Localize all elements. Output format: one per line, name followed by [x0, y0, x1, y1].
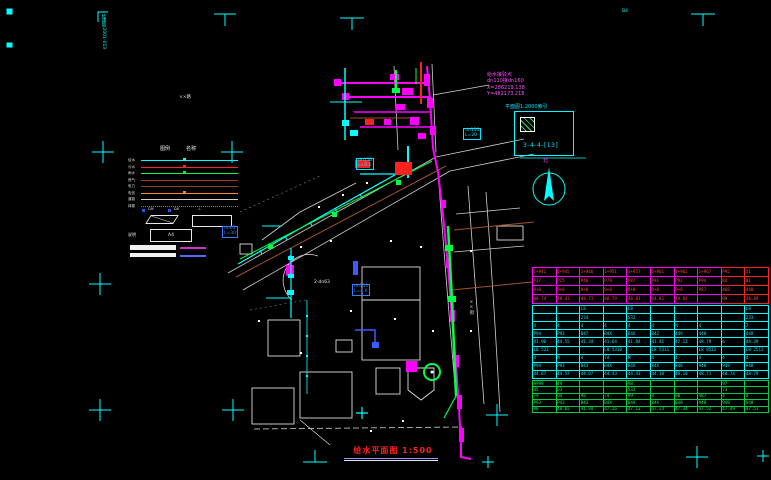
pipe-table-cell: B4X: [603, 330, 627, 338]
pipe-table-lower: 999949989745D353273799498749949048744P93…: [532, 380, 769, 413]
cad-canvas[interactable]: 平面图1:2000索引 3-4-4-[13] 北 给水接驳点 dn110接dn1…: [0, 0, 771, 480]
pipe-table-cell: 47.11: [674, 338, 698, 346]
legend-row-line: [141, 199, 238, 200]
pipe-table-cell: 532: [627, 314, 651, 322]
legend-row-line: [141, 186, 238, 187]
pipe-table-cell: L8 5310: [603, 346, 627, 354]
pipe-table-cell: [721, 306, 745, 314]
pipe-table-cell: 48.65: [556, 406, 580, 412]
legend-row-2: 雨水: [128, 171, 246, 177]
pipe-table-cell: 44.82: [650, 295, 674, 304]
pipe-table-cell: 1+962: [674, 268, 698, 277]
pipe-table-cell: [698, 314, 722, 322]
pipe-table-cell: M: [556, 354, 580, 362]
pipe-table-cell: 41.34: [580, 338, 604, 346]
pipe-table-cell: L8: [745, 306, 769, 314]
pipe-table-cell: 47.49: [721, 406, 745, 412]
pipe-table-cell: [698, 306, 722, 314]
pipe-table-cell: 48.74: [533, 295, 557, 304]
pipe-table-cell: [603, 314, 627, 322]
pipe-table-cell: [698, 295, 722, 304]
pipe-table-cell: 98: [721, 295, 745, 304]
pipe-table-cell: [533, 306, 557, 314]
pipe-table-cell: 4: [698, 322, 722, 330]
pipe-table-cell: m: [721, 338, 745, 346]
pipe-table-cell: [674, 314, 698, 322]
connection-line4: Y=482173.218: [487, 91, 525, 97]
pipe-table-cell: 48.79: [745, 370, 769, 378]
pipe-table-cell: [556, 306, 580, 314]
pipe-table-cell: [674, 306, 698, 314]
pipe-table-cell: 44.67: [533, 370, 557, 378]
pipe-table-cell: L8: [627, 306, 651, 314]
map-label-street-1: ××路: [179, 96, 191, 101]
pipe-table-cell: 41.94: [580, 406, 604, 412]
pipe-table-cell: 1+946: [580, 268, 604, 277]
pipe-table-middle-grid: L8L8L8234532233444444M47P94P93B47B4X84X8…: [532, 305, 769, 379]
index-box-caption: 平面图1:2000索引: [505, 103, 548, 110]
legend-row-1: 污水: [128, 165, 246, 171]
pipe-table-cell: 234: [580, 314, 604, 322]
legend-blue-line: [180, 255, 206, 257]
map-label-2dn63: 2-dn63: [314, 281, 330, 286]
pipe-table-cell: 47.51: [745, 406, 769, 412]
legend-row-marker: [183, 171, 186, 174]
pipe-table-cell: 48.43: [556, 295, 580, 304]
pipe-table-cell: [650, 314, 674, 322]
pipe-table-cell: P25: [556, 277, 580, 286]
title-underline-2: [344, 460, 438, 461]
pipe-table-cell: 51: [745, 268, 769, 277]
legend-row-marker: [183, 191, 186, 194]
pipe-table-cell: 74: [603, 354, 627, 362]
legend-row-label: 绿篱: [128, 204, 139, 209]
pipe-table-cell: 1+945: [556, 268, 580, 277]
pipe-table-cell: P94: [533, 330, 557, 338]
pipe-table-cell: 48.10: [674, 370, 698, 378]
index-hatch-square: [520, 117, 535, 132]
legend-row-line: [141, 167, 238, 168]
pipe-table-cell: 1+961: [650, 268, 674, 277]
map-label-street-2: ××街: [468, 300, 473, 315]
pipe-table-cell: 48.79: [698, 338, 722, 346]
pipe-table-cell: 47.13: [627, 406, 651, 412]
legend-row-0: 给水: [128, 158, 246, 164]
pipe-table-cell: 4: [533, 354, 557, 362]
pipes-blue: [353, 261, 379, 348]
pipe-table-cell: 9+8: [580, 286, 604, 295]
pipes-magenta: [286, 66, 471, 459]
pipe-table-cell: 9+8: [674, 286, 698, 295]
pipe-table-cell: 4: [674, 354, 698, 362]
pipe-table-cell: 448: [745, 286, 769, 295]
pipe-table-cell: 47.26: [603, 406, 627, 412]
legend-bar-2: [130, 253, 176, 257]
legend-row-label: 道路: [128, 197, 139, 202]
map-label-sheet-code: B4: [622, 10, 628, 15]
index-box: 3-4-4-[13]: [514, 111, 574, 156]
connection-line3: X=286219.138: [487, 85, 525, 91]
legend-row-6: 道路: [128, 197, 246, 203]
pipe-table-cell: 47.34: [674, 406, 698, 412]
index-sheet-code: 3-4-4-[13]: [523, 142, 558, 149]
pipe-table-cell: P79: [603, 277, 627, 286]
pipe-table-cell: [580, 346, 604, 354]
legend-row-line: [141, 206, 238, 207]
pipe-table-cell: 48.71: [698, 370, 722, 378]
pipe-table-cell: 448: [745, 330, 769, 338]
pipe-table-cell: 84Z: [650, 330, 674, 338]
map-label-dn110-l20: dn110L=20: [463, 128, 481, 140]
pipe-table-cell: 98: [533, 406, 557, 412]
building-outlines: [240, 226, 523, 424]
pipe-table-cell: 9+8: [603, 286, 627, 295]
legend-bar-1: [130, 245, 176, 250]
pipe-table-cell: 48.79: [603, 295, 627, 304]
pipe-table-cell: 4: [650, 322, 674, 330]
map-label-stamp-vert: 桂建审2001-013: [100, 14, 105, 49]
pipe-table-cell: 1+957: [627, 268, 651, 277]
connection-annotation: 给水接驳点 dn110接dn160 X=286219.138 Y=482173.…: [487, 72, 525, 97]
pipe-table-cell: M: [627, 354, 651, 362]
pipe-table-cell: 44.04: [674, 295, 698, 304]
pipe-table-cell: [627, 346, 651, 354]
pipe-table-cell: P94: [533, 362, 557, 370]
pipe-table-cell: 44.55: [556, 338, 580, 346]
legend-row-7: 绿篱: [128, 204, 246, 210]
pipe-table-cell: 9+8: [533, 286, 557, 295]
legend-row-line: [141, 160, 238, 161]
legend-magenta-line: [180, 247, 206, 249]
connection-line2: dn110接dn160: [487, 78, 525, 84]
legend-row-label: 雨水: [128, 171, 139, 176]
pipe-table-cell: 948: [721, 362, 745, 370]
map-label-dn63-l30: dn63L=30: [222, 226, 238, 238]
pipe-table-cell: 4: [580, 354, 604, 362]
pipe-table-cell: B43: [580, 362, 604, 370]
pipe-table-cell: L8 8512: [698, 346, 722, 354]
pipe-table-cell: B47: [580, 330, 604, 338]
pipe-table-cell: L8 523: [533, 346, 557, 354]
pipe-table-cell: 4: [698, 354, 722, 362]
pipe-table-cell: P91: [650, 277, 674, 286]
pipe-table-cell: P93: [556, 330, 580, 338]
pipe-table-cell: 4: [580, 322, 604, 330]
pipe-table-cell: P46: [580, 277, 604, 286]
pipe-table-cell: 47.24: [650, 406, 674, 412]
legend-note-label: 说明: [128, 232, 136, 238]
pipe-table-cell: P93: [556, 362, 580, 370]
sheet-title: 给水平面图 1:500: [338, 445, 448, 456]
pipe-table-cell: 44.43: [603, 370, 627, 378]
legend-row-label: 电力: [128, 184, 139, 189]
pipe-table-cell: 948: [745, 362, 769, 370]
legend-slope-symbol: [145, 215, 179, 224]
pipe-table-cell: [674, 346, 698, 354]
utility-lines-brown: [236, 118, 534, 290]
pipe-table-cell: 468: [721, 286, 745, 295]
map-label-dn110-l40: dn110L=4.0: [352, 284, 370, 296]
north-label: 北: [543, 157, 548, 164]
pipe-table-cell: 48.73: [580, 295, 604, 304]
legend-row-3: 燃气: [128, 178, 246, 184]
pipe-table-cell: L8 5311: [650, 346, 674, 354]
pipe-table-cell: 47.52: [698, 406, 722, 412]
pipe-table-cell: 4: [627, 322, 651, 330]
pipe-table-cell: 41.64: [603, 338, 627, 346]
legend-blue-dot-2: [168, 209, 171, 212]
pipe-table-cell: 41.41: [650, 338, 674, 346]
legend-angle-symbol: ∠: [198, 207, 201, 211]
pipe-table-cell: 4: [533, 322, 557, 330]
pipe-table-cell: 4: [721, 354, 745, 362]
pipe-table-cell: 1+941: [533, 268, 557, 277]
legend-row-marker: [183, 158, 186, 161]
pipe-table-cell: P92: [721, 268, 745, 277]
pipe-table-cell: B4X: [603, 362, 627, 370]
legend-row-line: [141, 180, 238, 181]
pipe-table-cell: 4: [650, 354, 674, 362]
pipe-table-cell: 449: [674, 330, 698, 338]
pipe-table-cell: 48.81: [627, 295, 651, 304]
pipe-table-cell: 44.43: [627, 370, 651, 378]
pipes-cyan: [238, 68, 408, 419]
legend-panel: 图例 名称 给水污水雨水燃气电力电信道路绿篱 CM DX ∠ 说明 A4: [128, 145, 248, 265]
pipe-table-cell: 48.09: [745, 295, 769, 304]
pipe-table-cell: 48.39: [745, 338, 769, 346]
pipe-table-cell: 84X: [627, 362, 651, 370]
pipe-table-cell: P87: [698, 286, 722, 295]
legend-row-label: 污水: [128, 165, 139, 170]
pipe-table-cell: L8 2512: [745, 346, 769, 354]
legend-row-label: 给水: [128, 158, 139, 163]
pipe-table-cell: 41.96: [533, 338, 557, 346]
pipe-table-cell: 84X: [650, 362, 674, 370]
legend-header-name: 名称: [186, 145, 196, 152]
well-center-dot: [431, 371, 434, 374]
title-underline-1: [344, 458, 438, 459]
north-arrow: [520, 158, 586, 205]
pipe-table-cell: 9+8: [627, 286, 651, 295]
pipe-table-cell: P94: [698, 277, 722, 286]
pipe-table-cell: 233: [745, 314, 769, 322]
pipe-table-cell: [556, 346, 580, 354]
legend-row-5: 电信: [128, 191, 246, 197]
pipe-table-cell: [650, 306, 674, 314]
pipe-table-upper-grid: 1+9411+9451+9461+9511+9571+9611+9621+967…: [532, 267, 769, 304]
legend-a4-box: A4: [150, 229, 192, 242]
map-label-dn110-l90: dn110L=9.0: [356, 158, 374, 170]
legend-row-line: [141, 173, 238, 174]
pipe-table-cell: [556, 314, 580, 322]
pipe-table-cell: [603, 306, 627, 314]
pipe-table-cell: M: [674, 322, 698, 330]
pipe-table-cell: 1+951: [603, 268, 627, 277]
pipe-table-cell: 848: [674, 362, 698, 370]
pipe-table-cell: 4: [603, 322, 627, 330]
legend-header-symbol: 图例: [160, 145, 170, 152]
pipe-table-cell: P92: [674, 277, 698, 286]
pipe-table-cell: 4: [556, 322, 580, 330]
pipe-table-cell: 44.07: [580, 370, 604, 378]
legend-symbol-2: DX: [174, 207, 179, 211]
pipe-table-cell: 84X: [627, 330, 651, 338]
pipe-table-cell: 4: [745, 354, 769, 362]
pipe-table-cell: 7: [745, 322, 769, 330]
pipe-table-cell: [533, 314, 557, 322]
legend-blue-dot-1: [142, 209, 145, 212]
pipe-table-cell: 41.94: [627, 338, 651, 346]
pipe-table-cell: L8: [580, 306, 604, 314]
legend-row-label: 电信: [128, 191, 139, 196]
pipe-table-lower-grid: 999949989745D353273799498749949048744P93…: [532, 380, 769, 413]
pipe-table-cell: 448: [698, 330, 722, 338]
legend-row-4: 电力: [128, 184, 246, 190]
pipe-table-cell: P17: [533, 277, 557, 286]
legend-row-marker: [183, 165, 186, 168]
pipe-table-cell: 48.74: [721, 370, 745, 378]
pipe-table-upper: 1+9411+9451+9461+9511+9571+9611+9621+967…: [532, 267, 769, 304]
pipe-table-cell: P87: [627, 277, 651, 286]
pipe-table-cell: 01: [745, 277, 769, 286]
pipe-table-cell: [721, 314, 745, 322]
legend-row-line: [141, 193, 238, 194]
pipe-table-cell: 1+967: [698, 268, 722, 277]
pipe-table-middle: L8L8L8234532233444444M47P94P93B47B4X84X8…: [532, 305, 769, 379]
pipe-table-cell: 9+8: [556, 286, 580, 295]
pipe-table-cell: 84: [721, 277, 745, 286]
pipe-table-cell: [721, 322, 745, 330]
legend-row-label: 燃气: [128, 178, 139, 183]
legend-symbol-1: CM: [148, 207, 153, 211]
pipe-table-cell: 44.57: [556, 370, 580, 378]
pipe-table-cell: 948: [698, 362, 722, 370]
pipe-table-cell: [721, 346, 745, 354]
pipe-table-cell: 44.10: [650, 370, 674, 378]
pipe-table-cell: [721, 330, 745, 338]
pipe-table-cell: 9+8: [650, 286, 674, 295]
